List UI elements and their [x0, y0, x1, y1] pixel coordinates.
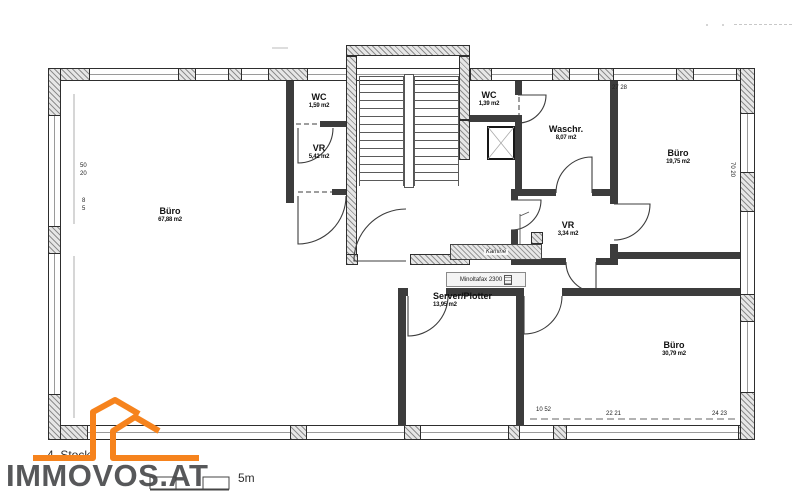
- room-area: 30,79 m2: [634, 351, 714, 358]
- room-area: 3,34 m2: [538, 231, 598, 238]
- room-name: Büro: [120, 206, 220, 217]
- room-label-waschraum: Waschr. 8,07 m2: [528, 124, 604, 142]
- room-name: Server/Plotter: [433, 291, 520, 302]
- dimension-label: 10 52: [536, 407, 551, 413]
- dimension-label: 27 28: [612, 85, 627, 91]
- room-area: 8,07 m2: [528, 135, 604, 142]
- dimension-label: 8: [82, 198, 85, 204]
- room-label-buero-bottom-right: Büro 30,79 m2: [634, 340, 714, 358]
- scale-label: 5m: [238, 471, 255, 485]
- logo-house-icon: [18, 396, 218, 466]
- room-label-wc-right: WC 1,39 m2: [462, 90, 516, 108]
- room-area: 67,88 m2: [120, 217, 220, 224]
- plot-artifact-dot: [706, 24, 708, 26]
- room-area: 19,75 m2: [638, 159, 718, 166]
- room-area: 1,59 m2: [292, 103, 346, 110]
- room-label-buero-top-right: Büro 19,75 m2: [638, 148, 718, 166]
- room-name: Waschr.: [528, 124, 604, 135]
- dimension-label: 22 21: [606, 411, 621, 417]
- room-area: 5,42 m2: [292, 154, 346, 161]
- plot-artifact-dashes: [734, 24, 792, 25]
- dimension-label: 5: [82, 206, 85, 212]
- room-label-vr-center: VR 3,34 m2: [538, 220, 598, 238]
- room-area: 1,39 m2: [462, 101, 516, 108]
- room-name: VR: [292, 143, 346, 154]
- room-label-server-plotter: Server/Plotter 13,95 m2: [415, 291, 520, 309]
- room-name: WC: [292, 92, 346, 103]
- room-name: Büro: [634, 340, 714, 351]
- plot-artifact-dot: [722, 24, 724, 26]
- room-name: WC: [462, 90, 516, 101]
- scale-bar: [146, 470, 236, 494]
- dimension-label: 70 20: [729, 162, 735, 177]
- dimension-label: 24 23: [712, 411, 727, 417]
- room-label-wc-left: WC 1,59 m2: [292, 92, 346, 110]
- room-name: VR: [538, 220, 598, 231]
- dimension-label: 20: [80, 171, 87, 177]
- room-label-vr-left: VR 5,42 m2: [292, 143, 346, 161]
- dimension-label: 50: [80, 163, 87, 169]
- room-label-buero-left: Büro 67,88 m2: [120, 206, 220, 224]
- room-name: Büro: [638, 148, 718, 159]
- room-area: 13,95 m2: [433, 302, 520, 309]
